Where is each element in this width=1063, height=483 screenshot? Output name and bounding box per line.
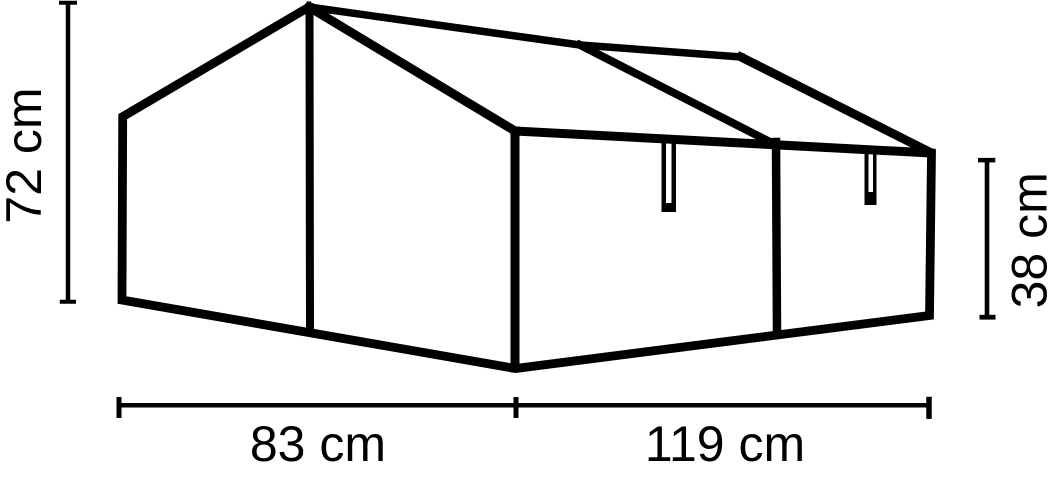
svg-text:83 cm: 83 cm <box>250 416 386 472</box>
svg-text:38 cm: 38 cm <box>1002 172 1058 308</box>
svg-text:72 cm: 72 cm <box>0 87 52 223</box>
svg-text:119 cm: 119 cm <box>645 416 805 472</box>
